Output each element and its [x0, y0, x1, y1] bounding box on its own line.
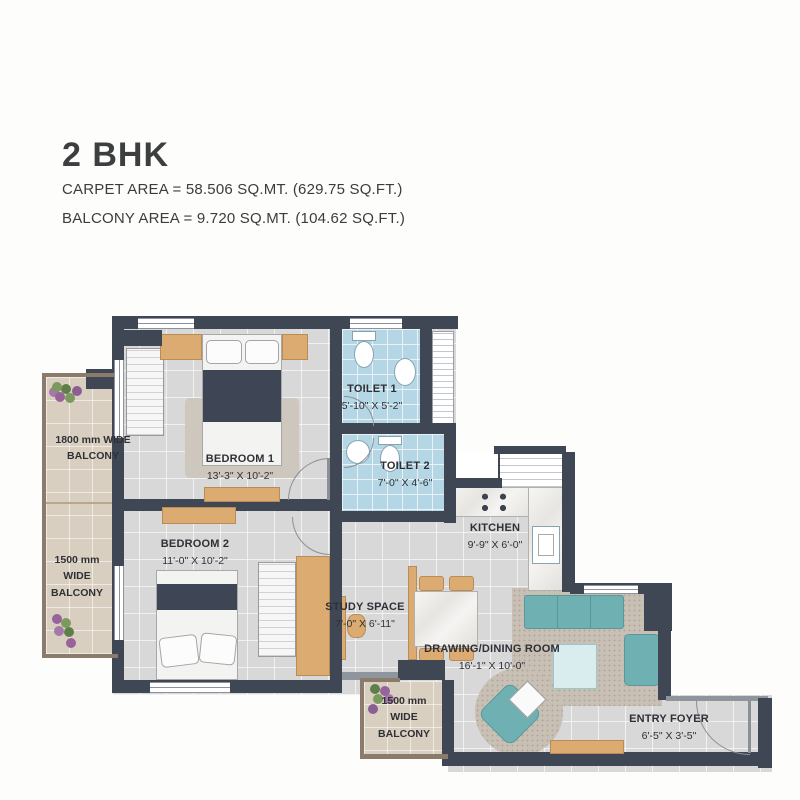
kitchen-label: KITCHEN 9'-9" X 6'-0"	[445, 520, 545, 553]
balcony-text: 1800 mm WIDE	[43, 432, 143, 448]
bedroom1-dresser	[204, 487, 280, 502]
room-name: ENTRY FOYER	[594, 711, 744, 728]
room-name: KITCHEN	[445, 520, 545, 537]
wall-segment	[444, 478, 502, 488]
pillow	[199, 632, 238, 666]
balcony-text: WIDE	[27, 568, 127, 584]
wall-segment	[644, 583, 672, 631]
armchair	[624, 634, 660, 686]
room-dims: 5'-10" X 5'-2"	[327, 398, 417, 414]
sofa	[524, 595, 624, 629]
balcony-wall	[42, 373, 116, 377]
service-shaft	[432, 331, 454, 425]
left-balcony-floor	[46, 377, 116, 654]
bed-blanket	[157, 584, 237, 610]
bedroom1-nightstand-left	[160, 334, 202, 360]
room-name: BEDROOM 2	[120, 536, 270, 553]
toilet2-label: TOILET 2 7'-0" X 4'-6"	[360, 458, 450, 491]
pillow	[206, 340, 242, 364]
floor-plan: BEDROOM 1 13'-3" X 10'-2" BEDROOM 2 11'-…	[0, 0, 800, 800]
left-bottom-balcony-label: 1500 mm WIDE BALCONY	[27, 552, 127, 601]
room-dims: 7'-0" X 6'-11"	[290, 616, 440, 632]
toilet1-tank	[352, 331, 376, 341]
window	[138, 318, 194, 329]
exterior-notch	[456, 452, 500, 480]
bedroom1-label: BEDROOM 1 13'-3" X 10'-2"	[165, 451, 315, 484]
bedroom1-nightstand-right	[282, 334, 308, 360]
wall-segment	[420, 329, 432, 423]
wall-segment	[86, 369, 114, 389]
balcony-text: BALCONY	[354, 726, 454, 742]
bedroom2-console	[162, 507, 236, 524]
bedroom1-wardrobe	[126, 348, 164, 436]
room-name: DRAWING/DINING ROOM	[392, 641, 592, 658]
room-dims: 7'-0" X 4'-6"	[360, 475, 450, 491]
plant-icon	[52, 382, 62, 392]
door-leaf	[327, 458, 330, 500]
entry-foyer-label: ENTRY FOYER 6'-5" X 3'-5"	[594, 711, 744, 744]
bedroom2-label: BEDROOM 2 11'-0" X 10'-2"	[120, 536, 270, 569]
room-dims: 11'-0" X 10'-2"	[120, 553, 270, 569]
toilet2-tank	[378, 436, 402, 445]
entry-door-leaf	[748, 701, 751, 753]
pillow	[158, 634, 199, 668]
balcony-divider	[46, 502, 112, 504]
dining-chair	[449, 576, 474, 591]
room-dims: 13'-3" X 10'-2"	[165, 468, 315, 484]
balcony-text: 1500 mm	[27, 552, 127, 568]
wall-segment	[442, 752, 772, 766]
balcony-wall	[360, 678, 400, 682]
room-name: BEDROOM 1	[165, 451, 315, 468]
drawing-dining-label: DRAWING/DINING ROOM 16'-1" X 10'-0"	[392, 641, 592, 674]
balcony-text: WIDE	[354, 709, 454, 725]
wall-segment	[562, 452, 575, 592]
left-top-balcony-label: 1800 mm WIDE BALCONY	[43, 432, 143, 465]
window	[584, 585, 638, 594]
balcony-wall	[42, 654, 118, 658]
toilet1-label: TOILET 1 5'-10" X 5'-2"	[327, 381, 417, 414]
pillow	[245, 340, 279, 364]
balcony-wall	[42, 373, 46, 658]
room-dims: 9'-9" X 6'-0"	[445, 537, 545, 553]
balcony-text: BALCONY	[27, 585, 127, 601]
balcony-text: BALCONY	[43, 448, 143, 464]
balcony-door-window	[114, 360, 124, 438]
window	[350, 318, 402, 329]
dining-chair	[419, 576, 444, 591]
balcony-text: 1500 mm	[354, 693, 454, 709]
bottom-balcony-label: 1500 mm WIDE BALCONY	[354, 693, 454, 742]
study-label: STUDY SPACE 7'-0" X 6'-11"	[290, 599, 440, 632]
room-dims: 6'-5" X 3'-5"	[594, 728, 744, 744]
room-dims: 16'-1" X 10'-0"	[392, 658, 592, 674]
wall-segment	[330, 499, 342, 693]
wall-segment	[658, 625, 671, 700]
wall-segment	[330, 511, 456, 522]
stove-icon	[476, 490, 512, 514]
kitchen-shaft	[498, 452, 566, 489]
balcony-wall	[360, 754, 448, 759]
room-name: TOILET 1	[327, 381, 417, 398]
plant-icon	[52, 614, 62, 624]
room-name: STUDY SPACE	[290, 599, 440, 616]
room-name: TOILET 2	[360, 458, 450, 475]
window	[150, 682, 230, 693]
bed-blanket	[203, 370, 281, 422]
toilet1-wc-icon	[354, 341, 374, 368]
wall-segment	[494, 446, 566, 454]
